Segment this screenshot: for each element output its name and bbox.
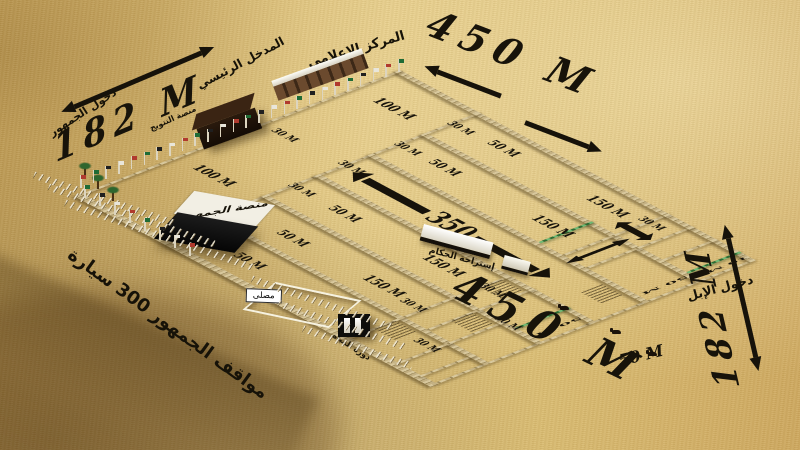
flag-cloth bbox=[157, 147, 162, 151]
flag-cloth bbox=[310, 91, 315, 95]
flag bbox=[398, 59, 400, 72]
flag bbox=[174, 235, 176, 248]
flag bbox=[189, 243, 191, 256]
flag-cloth bbox=[85, 185, 90, 189]
flag bbox=[118, 161, 120, 174]
flag bbox=[334, 82, 336, 95]
flag-cloth bbox=[183, 138, 188, 142]
pen-fence bbox=[417, 355, 476, 378]
arrow-left-icon bbox=[422, 61, 439, 77]
painted-measurement: 50 M bbox=[424, 157, 466, 177]
flag bbox=[114, 202, 116, 215]
site-plan-render: 350 100 M100 M30 M30 M30 M30 M30 M30 M50… bbox=[0, 0, 800, 450]
flag bbox=[144, 152, 146, 165]
flag bbox=[93, 170, 95, 183]
flag bbox=[182, 138, 184, 151]
arrow-right-icon bbox=[199, 42, 217, 59]
painted-measurement: 30 M bbox=[267, 127, 301, 144]
flag bbox=[258, 110, 260, 123]
flag-cloth bbox=[94, 170, 99, 174]
flag-cloth bbox=[374, 68, 379, 72]
painted-measurement: 30 M bbox=[390, 141, 424, 158]
palm-tree bbox=[112, 192, 114, 201]
flag bbox=[144, 218, 146, 231]
flag-cloth bbox=[297, 96, 302, 100]
flag bbox=[105, 166, 107, 179]
flag-cloth bbox=[132, 156, 137, 160]
flag-cloth bbox=[119, 161, 124, 165]
painted-measurement: 50 M bbox=[272, 228, 314, 248]
arrow-left-icon bbox=[749, 356, 764, 372]
flag-cloth bbox=[208, 129, 213, 133]
flag-cloth bbox=[246, 115, 251, 119]
flag-cloth bbox=[81, 175, 86, 179]
flag-cloth bbox=[234, 119, 239, 123]
flag bbox=[271, 105, 273, 118]
flag bbox=[220, 124, 222, 137]
camel-silhouette bbox=[560, 306, 569, 310]
flag bbox=[194, 133, 196, 146]
flag bbox=[129, 210, 131, 223]
flag bbox=[322, 87, 324, 100]
flag-cloth bbox=[221, 124, 226, 128]
flag bbox=[156, 147, 158, 160]
flag-cloth bbox=[106, 166, 111, 170]
flag bbox=[169, 143, 171, 156]
flag bbox=[207, 129, 209, 142]
flag-cloth bbox=[272, 105, 277, 109]
palm-tree bbox=[97, 180, 99, 189]
flag bbox=[385, 64, 387, 77]
flag-cloth bbox=[190, 243, 195, 247]
flag-cloth bbox=[361, 73, 366, 77]
flag bbox=[80, 175, 82, 188]
flag-cloth bbox=[100, 193, 105, 197]
flag-cloth bbox=[285, 101, 290, 105]
painted-measurement: 100 M bbox=[187, 163, 239, 189]
flag-cloth bbox=[170, 143, 175, 147]
flag-cloth bbox=[335, 82, 340, 86]
painted-measurement: 150 M bbox=[581, 194, 633, 220]
painted-measurement: 30 M bbox=[396, 297, 430, 314]
flag bbox=[159, 227, 161, 240]
painted-measurement: 30 M bbox=[284, 182, 318, 199]
flag-cloth bbox=[130, 210, 135, 214]
flag-cloth bbox=[323, 87, 328, 91]
flag-cloth bbox=[115, 202, 120, 206]
camel-silhouette bbox=[648, 352, 657, 356]
flag-cloth bbox=[160, 227, 165, 231]
flag bbox=[360, 73, 362, 86]
flag bbox=[373, 68, 375, 81]
flag bbox=[131, 156, 133, 169]
flag-cloth bbox=[386, 64, 391, 68]
flag-cloth bbox=[195, 133, 200, 137]
flag bbox=[245, 115, 247, 128]
flag-cloth bbox=[145, 218, 150, 222]
flag-cloth bbox=[259, 110, 264, 114]
flag bbox=[347, 78, 349, 91]
flag-cloth bbox=[145, 152, 150, 156]
dimension-value: 450 M bbox=[416, 6, 656, 119]
flag bbox=[309, 91, 311, 104]
arrow-right-icon bbox=[587, 141, 604, 157]
flag-cloth bbox=[348, 78, 353, 82]
flag bbox=[296, 96, 298, 109]
flag-cloth bbox=[175, 235, 180, 239]
flag bbox=[84, 185, 86, 198]
painted-measurement: 50 M bbox=[324, 204, 366, 224]
camel-silhouette bbox=[612, 330, 621, 334]
flag-cloth bbox=[399, 59, 404, 63]
flag bbox=[284, 101, 286, 114]
flag bbox=[233, 119, 235, 132]
flag bbox=[99, 193, 101, 206]
